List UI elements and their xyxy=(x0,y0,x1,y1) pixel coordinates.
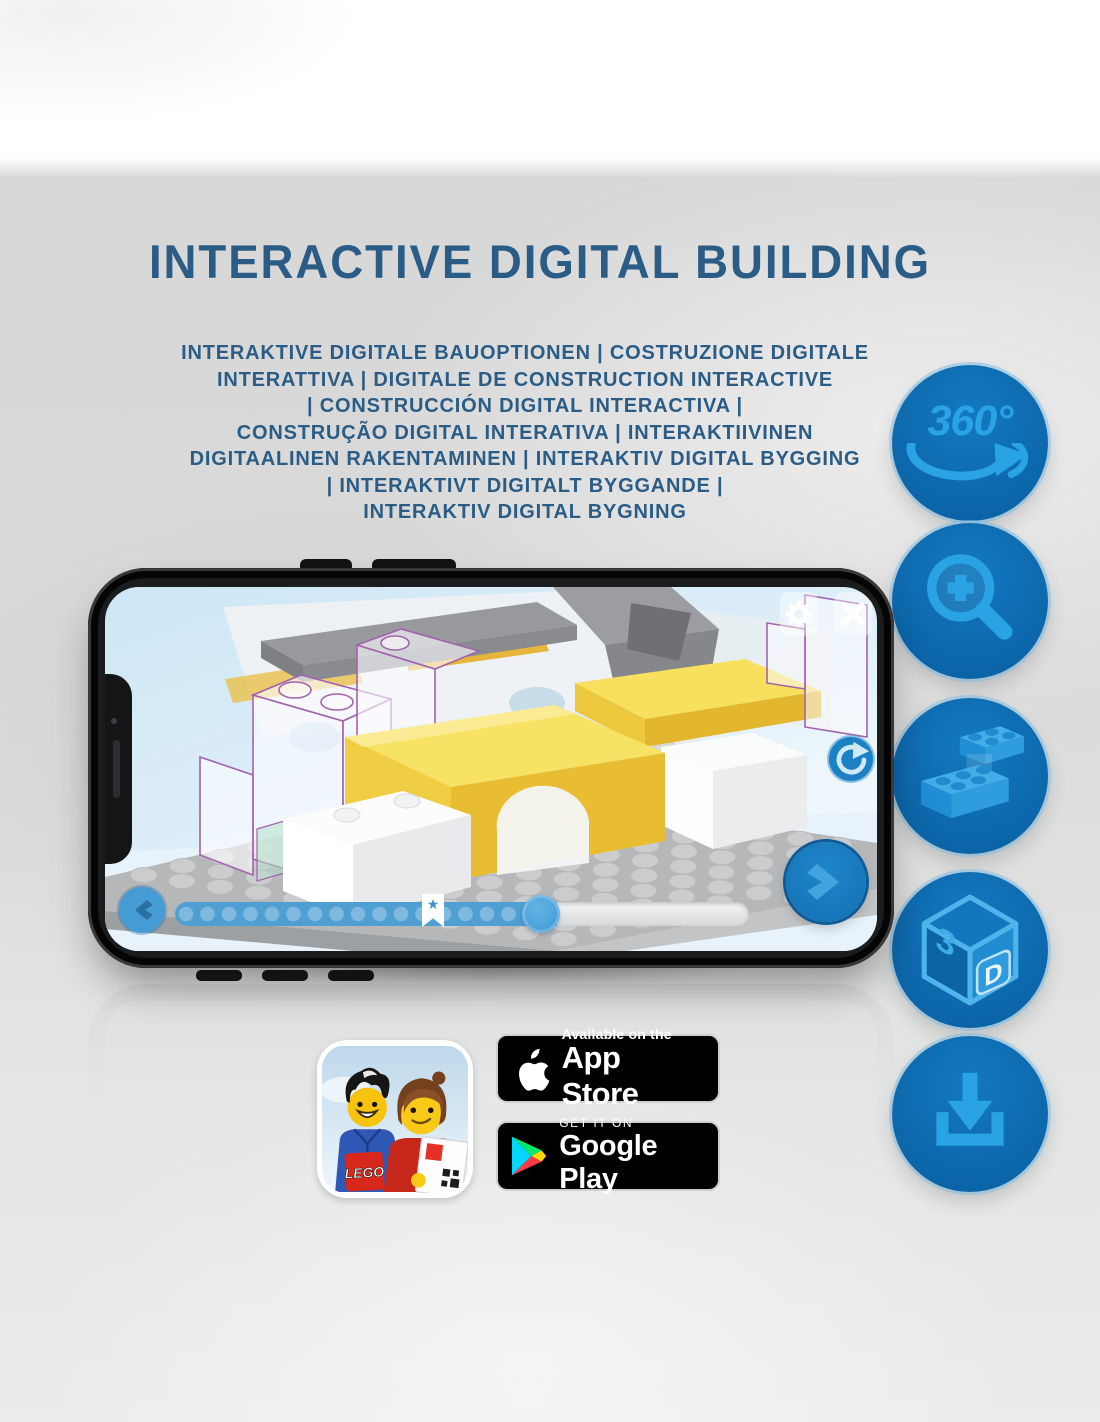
lego-logo-square: LEGO xyxy=(344,1152,385,1192)
subtitle-line: CONSTRUÇÃO DIGITAL INTERATIVA | INTERAKT… xyxy=(125,420,925,447)
lego-3d-model-viewport[interactable] xyxy=(105,587,877,951)
page-title: INTERACTIVE DIGITAL BUILDING xyxy=(16,234,1064,289)
next-step-button[interactable] xyxy=(786,842,866,922)
settings-button[interactable] xyxy=(780,592,818,636)
lego-app-icon[interactable]: LEGO xyxy=(317,1040,473,1198)
apple-icon xyxy=(512,1046,550,1092)
lego-app-icon-art: LEGO xyxy=(322,1045,468,1193)
feature-badge-download xyxy=(892,1036,1048,1192)
phone-port xyxy=(328,970,374,981)
lego-logo-text: LEGO xyxy=(344,1163,384,1181)
phone-reflection xyxy=(88,984,894,1169)
3d-cube-icon: 3 D xyxy=(911,891,1029,1009)
previous-step-button[interactable] xyxy=(119,887,165,933)
google-play-icon xyxy=(512,1134,547,1178)
feature-badge-zoom-in xyxy=(892,523,1048,679)
phone-notch xyxy=(105,674,132,864)
multilingual-subtitle: INTERAKTIVE DIGITALE BAUOPTIONEN | COSTR… xyxy=(125,340,925,526)
subtitle-line: INTERAKTIVE DIGITALE BAUOPTIONEN | COSTR… xyxy=(125,340,925,367)
app-store-badge[interactable]: Available on the App Store xyxy=(496,1034,720,1103)
lego-app-screen: ★ xyxy=(105,587,877,951)
progress-slider-handle[interactable] xyxy=(522,895,560,933)
subtitle-line: | CONSTRUCCIÓN DIGITAL INTERACTIVA | xyxy=(125,393,925,420)
subtitle-line: | INTERAKTIVT DIGITALT BYGGANDE | xyxy=(125,473,925,500)
subtitle-line: DIGITAALINEN RAKENTAMINEN | INTERAKTIV D… xyxy=(125,446,925,473)
360-label: 360° xyxy=(892,397,1048,446)
app-store-name: App Store xyxy=(562,1040,704,1112)
chevron-right-icon xyxy=(798,854,854,910)
lego-marketing-panel: INTERACTIVE DIGITAL BUILDING INTERAKTIVE… xyxy=(0,0,1100,1422)
zoom-in-magnifier-icon xyxy=(914,545,1026,657)
build-progress-bar[interactable]: ★ xyxy=(175,902,749,926)
rotate-view-button[interactable] xyxy=(829,737,873,781)
feature-badge-360-rotation: 360° xyxy=(892,365,1048,521)
chevron-left-icon xyxy=(128,896,156,924)
build-progress-fill xyxy=(175,902,557,926)
earpiece-speaker xyxy=(113,740,120,798)
rotate-icon xyxy=(832,740,870,778)
google-play-tagline: GET IT ON xyxy=(559,1116,704,1130)
front-camera xyxy=(111,718,117,724)
google-play-badge[interactable]: GET IT ON Google Play xyxy=(496,1121,720,1191)
gear-icon xyxy=(784,599,814,629)
smartphone-mockup: ★ xyxy=(88,568,894,968)
subtitle-line: INTERATTIVA | DIGITALE DE CONSTRUCTION I… xyxy=(125,367,925,394)
feature-badge-3d-view: 3 D xyxy=(892,872,1048,1028)
stacking-bricks-icon xyxy=(911,717,1029,835)
feature-badge-brick-stacking xyxy=(892,698,1048,854)
close-icon xyxy=(840,601,866,627)
subtitle-line: INTERAKTIV DIGITAL BYGNING xyxy=(125,499,925,526)
phone-port xyxy=(196,970,242,981)
close-button[interactable] xyxy=(834,592,872,636)
360-rotation-icon xyxy=(904,443,1036,499)
google-play-name: Google Play xyxy=(559,1130,704,1196)
download-icon xyxy=(914,1058,1026,1170)
phone-port xyxy=(262,970,308,981)
